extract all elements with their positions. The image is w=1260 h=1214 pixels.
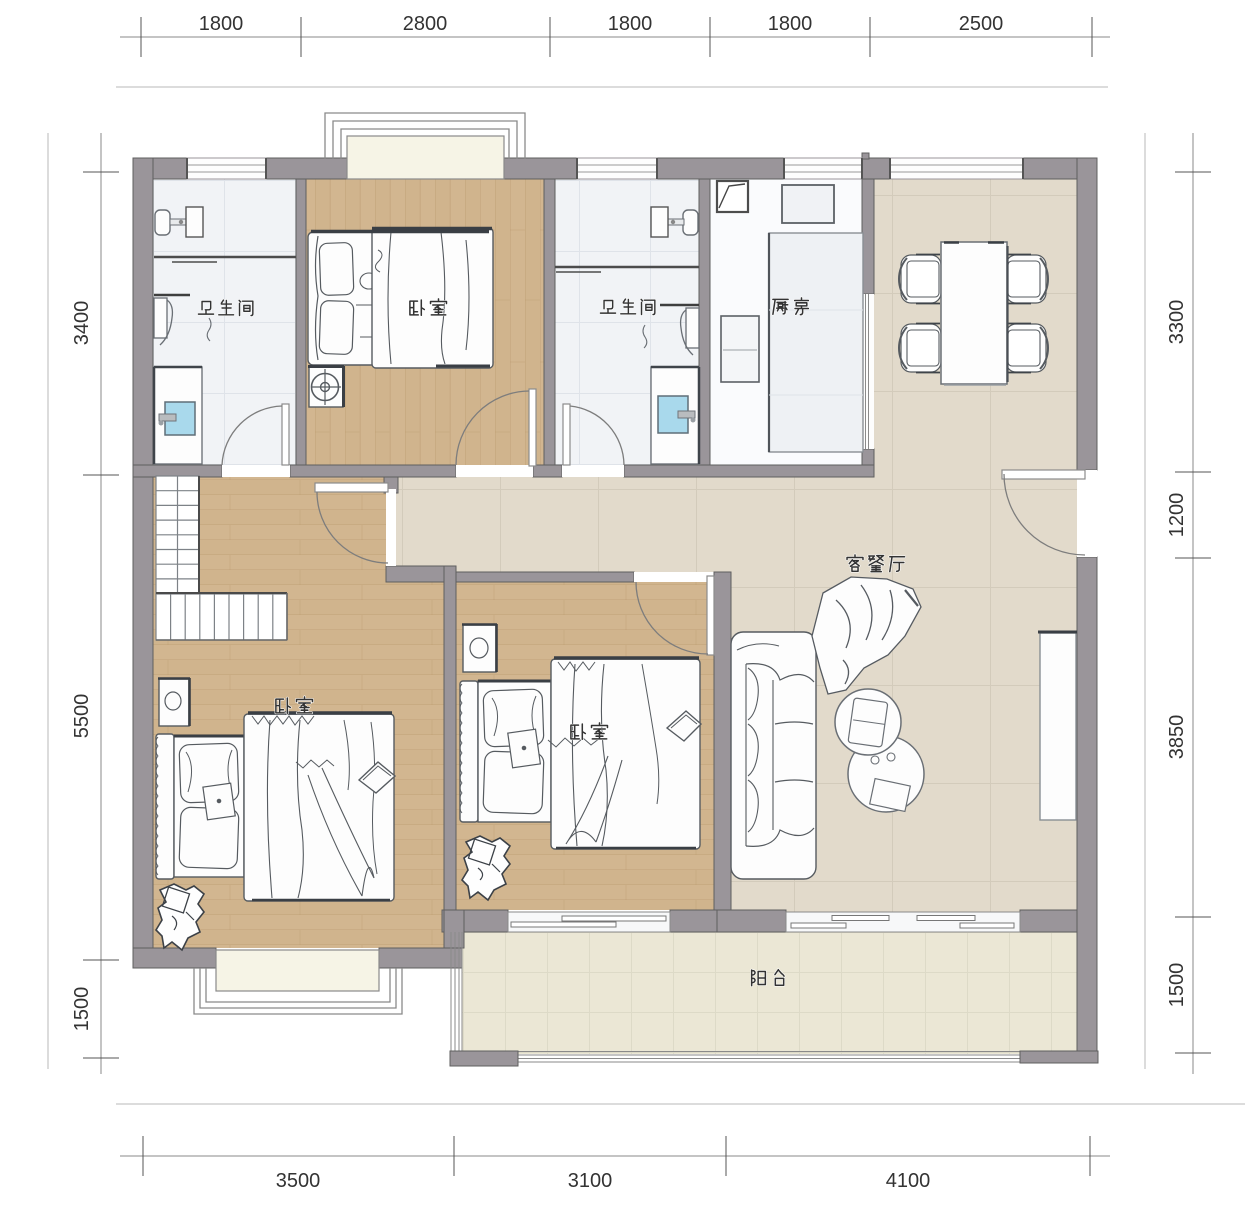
svg-text:1200: 1200: [1166, 493, 1188, 538]
svg-text:3400: 3400: [71, 301, 93, 346]
svg-text:2500: 2500: [959, 13, 1004, 35]
svg-text:2800: 2800: [403, 13, 448, 35]
svg-text:3500: 3500: [276, 1170, 321, 1192]
svg-text:5500: 5500: [71, 694, 93, 739]
svg-text:1800: 1800: [608, 13, 653, 35]
svg-text:1800: 1800: [768, 13, 813, 35]
svg-text:3300: 3300: [1166, 300, 1188, 345]
svg-text:1500: 1500: [71, 987, 93, 1032]
svg-text:1500: 1500: [1166, 963, 1188, 1008]
svg-text:3850: 3850: [1166, 715, 1188, 760]
svg-text:1800: 1800: [199, 13, 244, 35]
svg-text:3100: 3100: [568, 1170, 613, 1192]
svg-text:4100: 4100: [886, 1170, 931, 1192]
